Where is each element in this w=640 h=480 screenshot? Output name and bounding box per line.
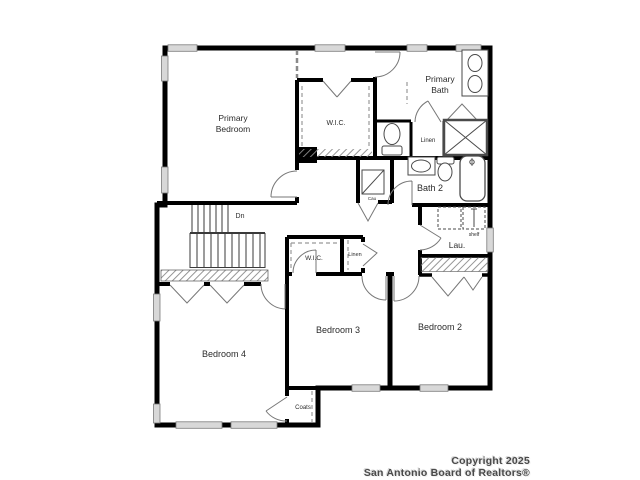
room-label-wic-bedroom3: W.I.C. xyxy=(305,255,323,262)
copyright-notice: Copyright 2025 San Antonio Board of Real… xyxy=(364,456,530,479)
bathtub xyxy=(460,156,485,201)
room-label-bedroom3: Bedroom 3 xyxy=(316,325,360,335)
stair-railing-hatch xyxy=(161,270,268,281)
washer-dryer xyxy=(438,207,485,229)
room-label-wic-primary: W.I.C. xyxy=(326,120,345,127)
utility-box xyxy=(362,170,384,194)
room-label-bath2: Bath 2 xyxy=(417,183,443,193)
toilet-primary xyxy=(382,124,402,156)
double-vanity xyxy=(462,50,488,96)
room-label-primary-bedroom-2: Bedroom xyxy=(216,124,251,134)
room-label-primary-bath-2: Bath xyxy=(431,85,449,95)
laundry-rod xyxy=(471,209,477,227)
interior-walls xyxy=(157,77,490,425)
label-stairs-dn: Dn xyxy=(236,213,245,220)
room-label-bedroom4: Bedroom 4 xyxy=(202,349,246,359)
label-utility-closet: Cau xyxy=(368,196,377,201)
staircase xyxy=(190,205,265,268)
room-label-laundry: Lau. xyxy=(449,240,466,250)
room-label-linen-primary: Linen xyxy=(421,138,436,144)
toilet-bath2 xyxy=(437,157,454,181)
room-label-primary-bath: Primary xyxy=(425,74,455,84)
room-label-linen-hall: Linen xyxy=(348,252,361,258)
floor-plan-drawing: Primary Bedroom W.I.C. Primary Bath Line… xyxy=(0,0,640,480)
label-laundry-shelf: shelf xyxy=(469,232,480,238)
room-label-coats: Coats xyxy=(295,405,311,411)
shower xyxy=(444,120,487,155)
room-label-primary-bedroom: Primary xyxy=(218,113,248,123)
copyright-line1: Copyright 2025 xyxy=(364,456,530,468)
room-label-bedroom2: Bedroom 2 xyxy=(418,322,462,332)
copyright-line2: San Antonio Board of Realtors® xyxy=(364,468,530,480)
floor-plan-image: Primary Bedroom W.I.C. Primary Bath Line… xyxy=(0,0,640,480)
vanity-bath2 xyxy=(408,157,435,175)
